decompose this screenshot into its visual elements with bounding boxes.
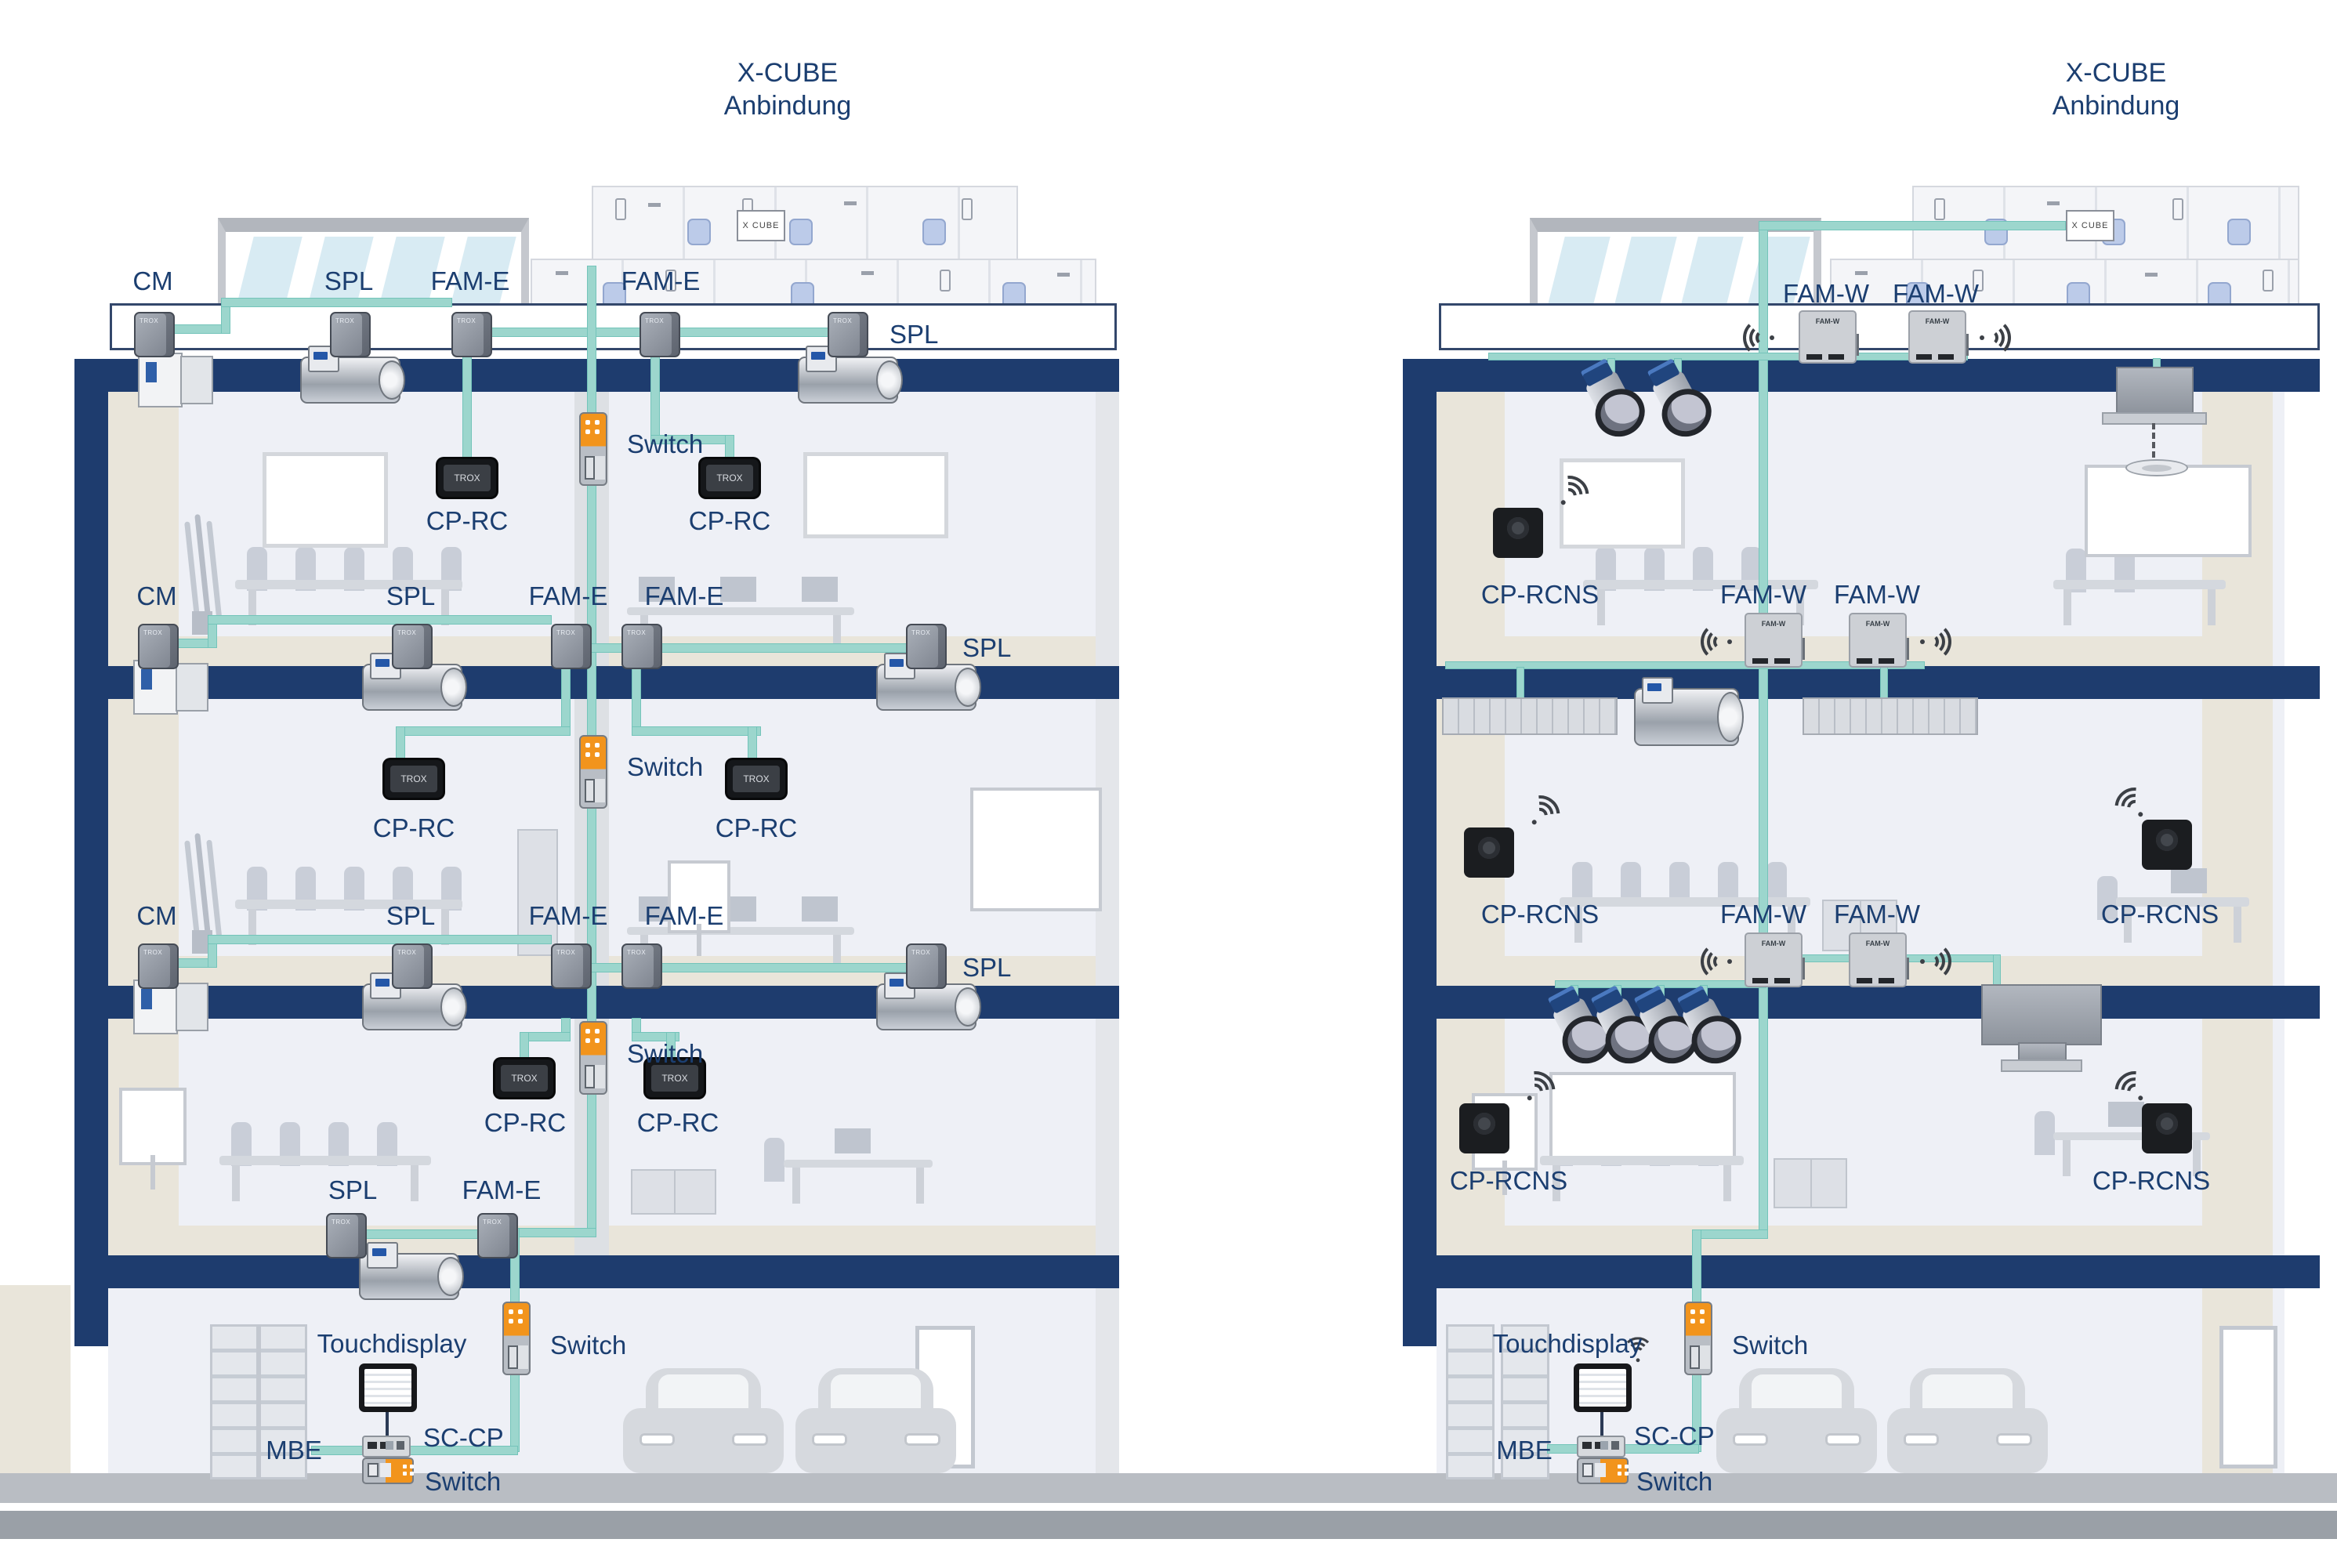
car-icon (795, 1368, 956, 1473)
fam-e-module: TROX (477, 1213, 518, 1258)
label-cp-rc: CP-RC (716, 813, 798, 843)
label-mbe: MBE (266, 1436, 322, 1465)
fam-e-module: TROX (551, 943, 592, 989)
touch-display (1574, 1363, 1632, 1412)
floor-finish (179, 1226, 1117, 1255)
label-cp-rc: CP-RC (689, 506, 771, 536)
monitor (720, 577, 756, 602)
title-line2: Anbindung (2053, 89, 2180, 122)
cable (726, 436, 734, 462)
label-cm: CM (136, 901, 176, 931)
car-icon (1716, 1368, 1877, 1473)
rooftop-strip (1439, 303, 2320, 350)
monitor (2171, 868, 2207, 893)
trox-logo: TROX (627, 949, 646, 956)
display-cable (386, 1412, 389, 1439)
x-cube-badge-text: X CUBE (2072, 221, 2109, 230)
label-touchdisplay: Touchdisplay (317, 1329, 467, 1359)
label-fam-e: FAM-E (529, 581, 608, 611)
cable (397, 727, 404, 762)
trox-logo: TROX (444, 465, 491, 491)
monitor (835, 1128, 871, 1153)
spl-module: TROX (906, 624, 947, 669)
cable (632, 664, 640, 732)
trox-logo: TROX (911, 629, 930, 636)
wifi-icon (1741, 320, 1777, 356)
label-spl: SPL (962, 953, 1011, 983)
slot-diffuser (1442, 697, 1618, 735)
trox-logo: TROX (483, 1219, 502, 1226)
label-fam-e: FAM-E (462, 1175, 542, 1205)
cp-rc-panel: TROX (495, 1059, 553, 1097)
cable (364, 1230, 477, 1238)
structural-column (1403, 359, 1437, 1346)
trox-logo: TROX (397, 629, 416, 636)
fam-e-module: TROX (640, 312, 680, 357)
chair (2034, 1111, 2055, 1155)
x-cube-badge: X CUBE (2066, 210, 2114, 241)
rooftop-strip (110, 303, 1117, 350)
title-line1: X-CUBE (2053, 56, 2180, 89)
fam-w-face-text: FAM-W (1910, 317, 1965, 325)
label-fam-e: FAM-E (621, 266, 701, 296)
fam-e-module: TROX (621, 943, 662, 989)
vav-damper-icon (362, 983, 462, 1030)
monitor (802, 577, 838, 602)
wifi-icon (1699, 624, 1735, 660)
ceiling-diffuser (2125, 459, 2188, 476)
label-fam-e: FAM-E (645, 581, 724, 611)
flipchart (119, 1088, 187, 1190)
trox-logo: TROX (143, 629, 162, 636)
cable (172, 325, 226, 333)
label-spl: SPL (386, 901, 435, 931)
vav-damper-icon (876, 664, 976, 711)
label-fam-w: FAM-W (1720, 900, 1806, 929)
trox-logo: TROX (645, 317, 664, 324)
wifi-icon (1699, 943, 1735, 980)
label-cp-rcns: CP-RCNS (1481, 900, 1599, 929)
label-spl: SPL (962, 633, 1011, 663)
cable (222, 299, 451, 306)
trox-logo: TROX (911, 949, 930, 956)
cable (748, 727, 756, 762)
label-cp-rc: CP-RC (637, 1108, 719, 1138)
ceiling-unit (1981, 984, 2102, 1045)
fam-w-module: FAM-W (1908, 310, 1966, 364)
label-cp-rcns: CP-RCNS (1450, 1166, 1567, 1196)
spl-module: TROX (906, 943, 947, 989)
network-switch (579, 412, 607, 486)
cp-rcns-sensor (2142, 820, 2192, 870)
fam-e-module: TROX (621, 624, 662, 669)
cable (511, 1373, 519, 1451)
floor-slab (1437, 666, 2320, 699)
ceiling-unit (2116, 367, 2194, 415)
label-cp-rcns: CP-RCNS (1481, 580, 1599, 610)
street (0, 1511, 2337, 1539)
fam-w-face-text: FAM-W (1746, 620, 1801, 628)
building-right-wireless: X CUBE FAM-W FAM-W (1168, 0, 2337, 1568)
wifi-icon (1976, 320, 2013, 356)
label-spl: SPL (890, 320, 938, 349)
fam-e-module: TROX (451, 312, 492, 357)
label-touchdisplay: Touchdisplay (1493, 1329, 1643, 1359)
label-switch: Switch (550, 1331, 626, 1360)
picture-frame (803, 452, 948, 538)
label-sc-cp: SC-CP (423, 1423, 504, 1453)
trox-logo: TROX (390, 766, 437, 792)
fam-w-module: FAM-W (1849, 932, 1907, 987)
cable (1693, 1230, 1767, 1238)
vav-damper-icon (359, 1253, 459, 1300)
network-switch (579, 735, 607, 809)
cp-rc-panel: TROX (385, 760, 443, 798)
trox-logo: TROX (556, 949, 575, 956)
label-switch: Switch (627, 1039, 703, 1069)
vav-damper-icon (1634, 688, 1739, 746)
wifi-icon (1917, 943, 1953, 980)
cp-rc-panel: TROX (438, 459, 496, 497)
trox-logo: TROX (139, 317, 158, 324)
vav-damper-icon (362, 664, 462, 711)
trox-logo: TROX (501, 1065, 548, 1092)
cable (463, 351, 471, 461)
conference-table (219, 1156, 431, 1165)
cm-access-panel (138, 353, 213, 404)
trox-logo: TROX (733, 766, 780, 792)
cm-module: TROX (138, 943, 179, 989)
fam-w-module: FAM-W (1799, 310, 1857, 364)
cp-rcns-sensor (1493, 508, 1543, 558)
cabinet (631, 1169, 716, 1215)
label-cm: CM (132, 266, 172, 296)
server-rack (210, 1324, 259, 1479)
trox-logo: TROX (143, 949, 162, 956)
cable (511, 1229, 596, 1237)
label-fam-e: FAM-E (529, 901, 608, 931)
cable (562, 664, 570, 732)
label-cp-rc: CP-RC (426, 506, 509, 536)
car-icon (623, 1368, 784, 1473)
floor-slab (1437, 1255, 2320, 1288)
cable (1489, 353, 1967, 360)
label-mbe: MBE (1496, 1436, 1553, 1465)
vav-damper-icon (300, 357, 400, 404)
cp-rc-panel: TROX (701, 459, 759, 497)
label-spl: SPL (328, 1175, 377, 1205)
trox-logo: TROX (651, 1065, 698, 1092)
label-cm: CM (136, 581, 176, 611)
cm-module: TROX (138, 624, 179, 669)
fam-e-module: TROX (551, 624, 592, 669)
wifi-icon (1917, 624, 1953, 660)
fam-w-face-text: FAM-W (1850, 620, 1905, 628)
fam-w-module: FAM-W (1745, 613, 1803, 668)
outer-wall-right (1096, 392, 1119, 1473)
trox-logo: TROX (457, 317, 476, 324)
title-line2: Anbindung (724, 89, 852, 122)
network-switch (1577, 1458, 1629, 1484)
title-line1: X-CUBE (724, 56, 852, 89)
trox-logo: TROX (627, 629, 646, 636)
fam-w-module: FAM-W (1745, 932, 1803, 987)
chair (764, 1138, 784, 1182)
network-switch (1684, 1302, 1712, 1375)
label-fam-w: FAM-W (1834, 900, 1920, 929)
sidewalk (0, 1473, 2337, 1503)
whiteboard (2085, 465, 2252, 557)
fam-w-face-text: FAM-W (1850, 940, 1905, 947)
vav-damper-icon (876, 983, 976, 1030)
spl-module: TROX (326, 1213, 367, 1258)
plant (184, 824, 228, 954)
label-fam-w: FAM-W (1720, 580, 1806, 610)
fam-w-face-text: FAM-W (1746, 940, 1801, 947)
whiteboard (1549, 1072, 1736, 1161)
label-spl: SPL (386, 581, 435, 611)
car-icon (1887, 1368, 2048, 1473)
label-cp-rcns: CP-RCNS (2101, 900, 2219, 929)
vav-damper-icon (798, 357, 898, 404)
label-fam-w: FAM-W (1893, 279, 1979, 309)
building-left-wired: X CUBE (0, 0, 1168, 1568)
ceiling-flange (2001, 1059, 2082, 1072)
fam-w-face-text: FAM-W (1800, 317, 1855, 325)
label-fam-e: FAM-E (431, 266, 510, 296)
door (2219, 1326, 2277, 1468)
diagram-title: X-CUBEAnbindung (2053, 56, 2180, 122)
sc-cp-controller (362, 1436, 411, 1458)
label-fam-w: FAM-W (1783, 279, 1869, 309)
trox-logo: TROX (556, 629, 575, 636)
conference-table (1540, 1156, 1744, 1165)
network-switch (502, 1302, 531, 1375)
label-fam-e: FAM-E (645, 901, 724, 931)
riser-cable (1759, 222, 1767, 1234)
x-cube-badge-text: X CUBE (743, 221, 780, 230)
spl-module: TROX (828, 312, 868, 357)
desk (784, 1160, 933, 1168)
cp-rcns-sensor (1464, 827, 1514, 878)
drop-line (2152, 423, 2155, 458)
cable (520, 1033, 528, 1061)
cabinet (1774, 1158, 1847, 1208)
label-cp-rcns: CP-RCNS (2092, 1166, 2210, 1196)
label-switch: Switch (627, 752, 703, 782)
cp-rcns-sensor (1459, 1103, 1509, 1153)
label-switch: Switch (425, 1467, 501, 1497)
server-rack (1446, 1324, 1495, 1479)
trox-logo: TROX (833, 317, 852, 324)
spl-module: TROX (392, 624, 433, 669)
trox-logo: TROX (332, 1219, 350, 1226)
trox-logo: TROX (397, 949, 416, 956)
touch-display (359, 1363, 417, 1412)
cable (208, 936, 551, 943)
network-switch (362, 1458, 414, 1484)
label-sc-cp: SC-CP (1634, 1421, 1715, 1451)
cable (632, 727, 760, 735)
diagram-title: X-CUBEAnbindung (724, 56, 852, 122)
spl-module: TROX (330, 312, 371, 357)
cm-module: TROX (134, 312, 175, 357)
cp-rcns-sensor (2142, 1103, 2192, 1153)
label-fam-w: FAM-W (1834, 580, 1920, 610)
roof-slab (108, 359, 1119, 392)
picture-frame (263, 452, 388, 548)
cable (1693, 1230, 1701, 1305)
floor-slab (108, 1255, 1119, 1288)
label-spl: SPL (324, 266, 373, 296)
cable (208, 616, 551, 624)
spl-module: TROX (392, 943, 433, 989)
structural-column (74, 359, 108, 1346)
label-cp-rc: CP-RC (373, 813, 455, 843)
cable (524, 1033, 570, 1041)
fam-w-module: FAM-W (1849, 613, 1907, 668)
label-switch: Switch (627, 429, 703, 459)
display-cable (1600, 1412, 1603, 1439)
sc-cp-controller (1577, 1436, 1625, 1458)
monitor (802, 896, 838, 922)
trox-logo: TROX (706, 465, 753, 491)
x-cube-badge: X CUBE (737, 210, 785, 241)
cp-rc-panel: TROX (727, 760, 785, 798)
exterior-ground (0, 1285, 71, 1473)
cable (1759, 222, 2065, 230)
slot-diffuser (1803, 697, 1978, 735)
desk (2053, 580, 2226, 589)
label-switch: Switch (1636, 1467, 1712, 1497)
whiteboard (970, 788, 1102, 911)
trox-logo: TROX (335, 317, 354, 324)
label-switch: Switch (1732, 1331, 1808, 1360)
cable (400, 727, 570, 735)
network-switch (579, 1021, 607, 1095)
floor-finish (1505, 1226, 2202, 1255)
label-cp-rc: CP-RC (484, 1108, 567, 1138)
